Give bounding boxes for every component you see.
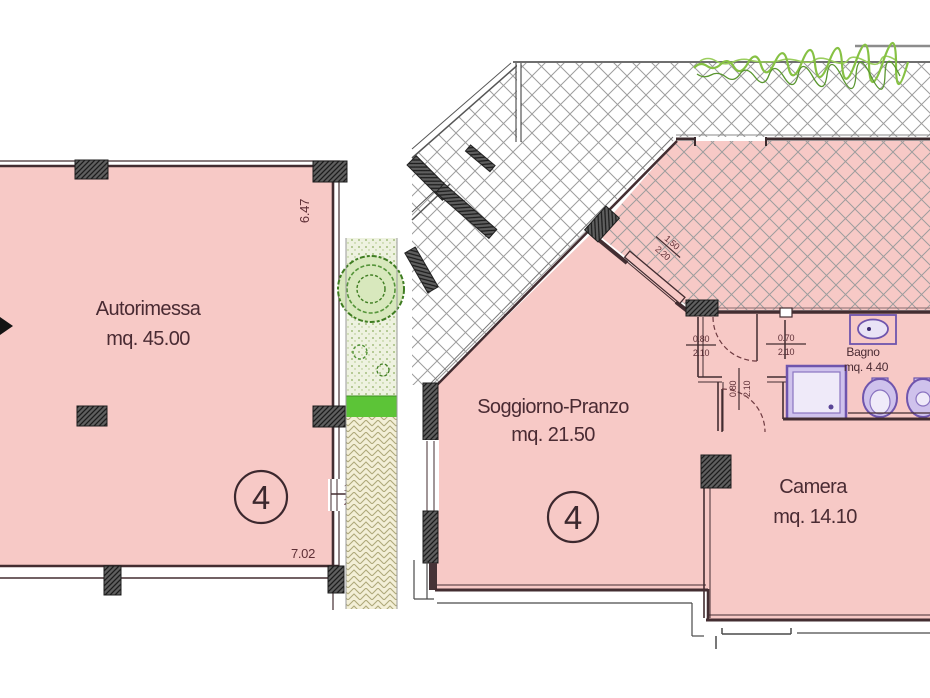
door-bath-w: 0.70 bbox=[778, 333, 795, 343]
living-name: Soggiorno-Pranzo bbox=[477, 396, 629, 418]
door-hall-w: 0.80 bbox=[693, 334, 710, 344]
floor-plan-page: Autorimessa mq. 45.00 6.47 7.02 4 1.50 2… bbox=[0, 0, 930, 698]
pillar bbox=[104, 566, 121, 595]
bedroom-area: mq. 14.10 bbox=[773, 506, 857, 528]
door-bedroom-h: 2.10 bbox=[742, 381, 752, 398]
paving-herringbone bbox=[346, 417, 397, 609]
bath-area: mq. 4.40 bbox=[844, 360, 889, 374]
garage-area: mq. 45.00 bbox=[106, 328, 190, 350]
sink-drain bbox=[867, 327, 871, 331]
bath-name: Bagno bbox=[846, 345, 880, 359]
bidet-bowl bbox=[870, 390, 890, 414]
living-west-wall bbox=[422, 383, 439, 590]
door-bath-h: 2.10 bbox=[778, 347, 795, 357]
garden-strip bbox=[338, 238, 404, 609]
garage-plan: Autorimessa mq. 45.00 6.47 7.02 4 1.50 2… bbox=[0, 160, 375, 610]
garage-dim-width: 7.02 bbox=[291, 546, 315, 561]
pillar bbox=[313, 406, 345, 427]
door-hall-h: 2.10 bbox=[693, 348, 710, 358]
apartment-unit-number: 4 bbox=[564, 499, 582, 536]
toilet-bowl bbox=[916, 392, 930, 406]
pillar bbox=[77, 406, 107, 426]
garage-name: Autorimessa bbox=[96, 298, 202, 320]
pillar bbox=[686, 300, 718, 316]
pillar bbox=[701, 455, 731, 488]
window bbox=[422, 440, 439, 511]
pillar bbox=[423, 383, 438, 440]
garage-dim-height: 6.47 bbox=[297, 199, 312, 223]
tree-symbol bbox=[338, 256, 404, 322]
garage-window bbox=[328, 479, 343, 511]
living-area: mq. 21.50 bbox=[511, 424, 595, 446]
pillar bbox=[328, 566, 344, 593]
shower-drain bbox=[829, 405, 834, 410]
apartment-plan: 1.50 2.20 bbox=[405, 43, 930, 649]
wall-segment bbox=[429, 563, 437, 590]
flue-notch bbox=[780, 308, 792, 317]
pillar bbox=[313, 161, 347, 182]
pillar bbox=[423, 511, 438, 563]
garage-floor bbox=[0, 167, 333, 566]
garage-unit-number: 4 bbox=[252, 479, 270, 516]
floor-plan-svg: Autorimessa mq. 45.00 6.47 7.02 4 1.50 2… bbox=[0, 0, 930, 698]
grass-band bbox=[346, 396, 397, 417]
sink-basin bbox=[858, 320, 888, 339]
door-bedroom-w: 0.80 bbox=[728, 381, 738, 398]
pillar bbox=[75, 160, 108, 179]
bedroom-name: Camera bbox=[779, 476, 848, 498]
